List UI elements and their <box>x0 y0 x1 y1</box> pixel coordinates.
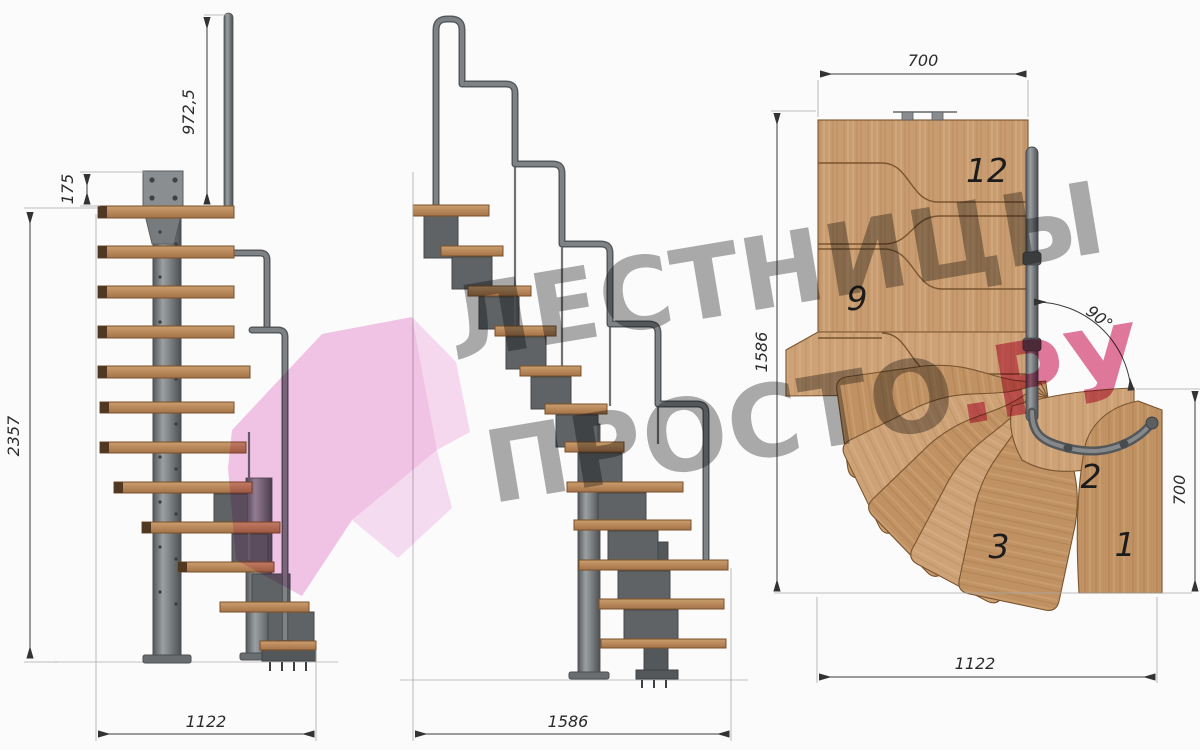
plan-view: 12 9 3 2 1 90° 700 1586 700 1122 <box>752 51 1200 683</box>
dim-side-length-label: 1586 <box>548 712 589 731</box>
side-modules <box>424 216 678 642</box>
dim-step-rise-label: 175 <box>58 174 77 205</box>
plan-fan-steps <box>835 349 1162 612</box>
column-base-flange <box>143 655 191 663</box>
dim-plan-left-length-label: 1586 <box>752 332 771 373</box>
dim-plan-bottom-length-label: 1122 <box>955 654 996 673</box>
front-elevation-view: 972,5 175 2357 1122 <box>4 13 338 741</box>
plan-angle-annotation: 90° <box>1034 301 1131 390</box>
dim-plan-right-width-label: 700 <box>1170 475 1189 506</box>
side-elevation-view: 1586 <box>400 19 748 741</box>
central-column <box>153 205 181 662</box>
dim-rail-height-label: 972,5 <box>179 89 198 135</box>
step-number-3: 3 <box>989 527 1010 566</box>
step-number-12: 12 <box>966 151 1008 190</box>
step-number-1: 1 <box>1115 525 1136 564</box>
anchor-bolts <box>270 662 306 671</box>
technical-drawing: 972,5 175 2357 1122 <box>0 0 1200 750</box>
anchor-bolts <box>642 680 666 688</box>
step-number-9: 9 <box>847 279 868 318</box>
dim-plan-top-width-label: 700 <box>908 51 939 70</box>
plan-wall-bracket <box>893 112 957 120</box>
column-flange <box>569 672 609 679</box>
dim-front-width-label: 1122 <box>186 712 227 731</box>
step-number-2: 2 <box>1081 457 1102 496</box>
turn-angle-label: 90° <box>1082 301 1116 333</box>
blueprint-canvas: 972,5 175 2357 1122 <box>0 0 1200 750</box>
rear-base <box>636 670 678 679</box>
dim-total-height-label: 2357 <box>4 415 23 457</box>
top-mount-plate <box>143 171 183 207</box>
